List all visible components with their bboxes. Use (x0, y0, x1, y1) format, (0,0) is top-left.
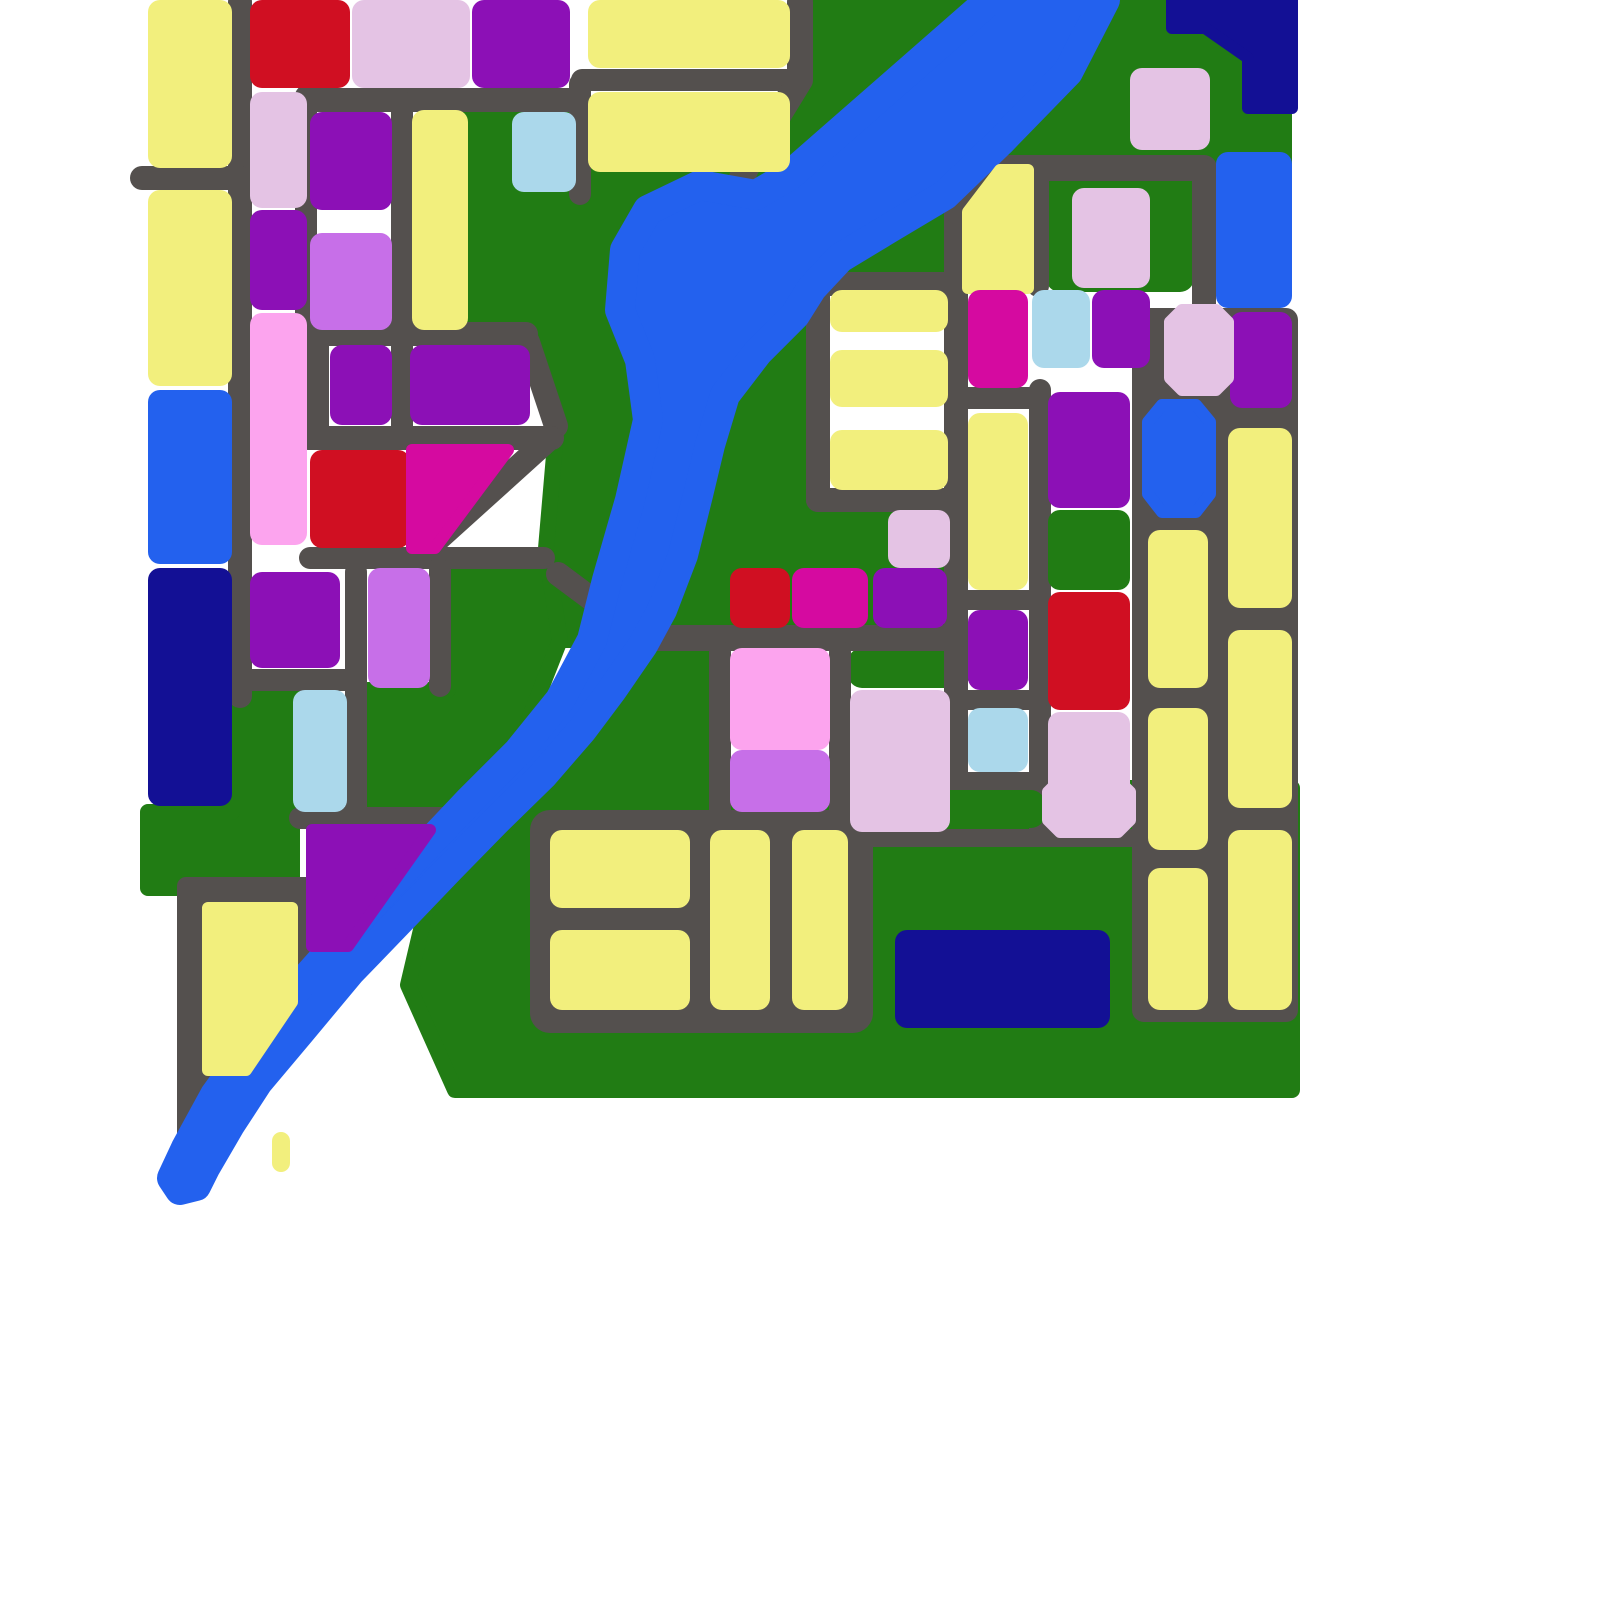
parcel-yellow (830, 430, 948, 490)
parcel-yellow (550, 930, 690, 1010)
parcel-yellow (1228, 830, 1292, 1010)
parcel-pink (730, 648, 830, 750)
parcel-yellow (1228, 428, 1292, 608)
parcel-yellow (710, 830, 770, 1010)
parcel-purple (330, 345, 392, 425)
parcel-yellow (1148, 708, 1208, 850)
parcel-yellow (148, 0, 232, 168)
parcel-purple (1048, 392, 1130, 508)
parcel-thistle (1048, 780, 1130, 832)
parcel-thistle (888, 510, 950, 568)
parcel-thistle (250, 92, 307, 208)
parcel-red (730, 568, 790, 628)
parcel-yellow (148, 190, 232, 386)
parcel-yellow (588, 92, 790, 172)
parcel-yellow (1148, 868, 1208, 1010)
parcel-thistle (1072, 188, 1150, 288)
parcel-lightblue (1032, 290, 1090, 368)
parcel-purple (310, 112, 392, 210)
parcel-red (1048, 592, 1130, 710)
parcel-yellow (588, 0, 790, 68)
parcel-yellow (792, 830, 848, 1010)
parcel-purple (472, 0, 570, 88)
parcel-orchid (730, 750, 830, 812)
parcel-yellow (830, 290, 948, 332)
parcel-purple (968, 610, 1028, 690)
parcel-lightblue (968, 708, 1028, 772)
parcel-blue (148, 390, 232, 564)
parcel-thistle (1130, 68, 1210, 150)
parcel-purple (250, 210, 307, 310)
city-map-canvas (0, 0, 1600, 1600)
parcel-orchid (310, 233, 392, 330)
parcel-lightblue (512, 112, 576, 192)
parcel-purple (873, 568, 947, 628)
parcel-purple (1230, 312, 1292, 408)
parcel-navy (895, 930, 1110, 1028)
parcel-yellow (412, 110, 468, 330)
parcel-yellow (1148, 530, 1208, 688)
parcel-thistle (850, 690, 950, 832)
parcel-magenta (968, 290, 1028, 388)
parcel-lightblue (293, 690, 347, 812)
parcel-yellow (968, 413, 1028, 590)
parcel-blue (1216, 152, 1292, 308)
parcel-orchid (368, 568, 430, 688)
parcel-yellow (550, 830, 690, 908)
parcel-yellow (830, 350, 948, 407)
city-map (0, 0, 1600, 1600)
parcel-green (1048, 510, 1130, 590)
parcel-magenta (792, 568, 868, 628)
parcel-purple (1092, 290, 1150, 368)
parcel-red (250, 0, 350, 88)
parcel-yellow (272, 1132, 290, 1172)
parcel-purple (410, 345, 530, 425)
parcel-purple (250, 572, 340, 668)
parcel-thistle (1170, 310, 1228, 390)
parcel-red (310, 450, 410, 548)
parcel-pink (250, 313, 307, 545)
parcel-yellow (1228, 630, 1292, 808)
parcel-blue (1148, 405, 1210, 512)
parcel-thistle (352, 0, 470, 88)
parcel-navy (148, 568, 232, 806)
